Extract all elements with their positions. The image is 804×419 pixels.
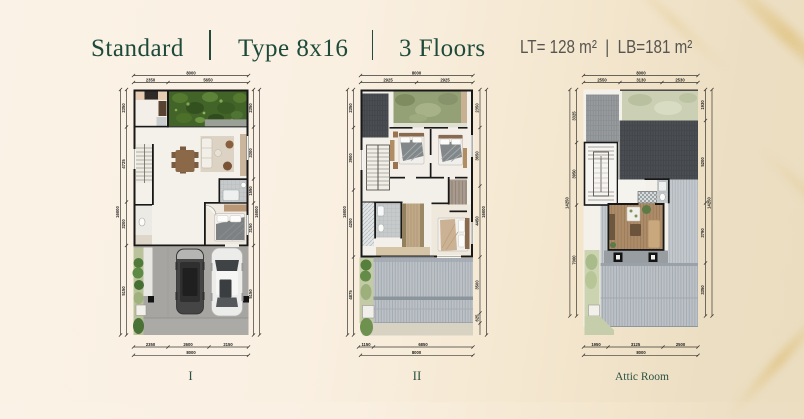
svg-text:3650: 3650 bbox=[475, 151, 480, 161]
svg-text:3500: 3500 bbox=[475, 280, 480, 290]
svg-text:1550: 1550 bbox=[248, 186, 253, 196]
svg-text:4450: 4450 bbox=[475, 216, 480, 226]
svg-text:5200: 5200 bbox=[700, 157, 705, 167]
svg-text:6850: 6850 bbox=[418, 342, 428, 347]
svg-text:3125: 3125 bbox=[631, 342, 641, 347]
svg-text:2350: 2350 bbox=[121, 103, 126, 113]
svg-text:2500: 2500 bbox=[676, 342, 686, 347]
svg-text:2350: 2350 bbox=[146, 342, 156, 347]
svg-text:5650: 5650 bbox=[203, 77, 213, 82]
svg-text:3325: 3325 bbox=[571, 111, 576, 121]
svg-text:5150: 5150 bbox=[248, 289, 253, 299]
svg-text:8000: 8000 bbox=[412, 350, 422, 355]
svg-text:Attic Room: Attic Room bbox=[615, 371, 669, 383]
svg-text:14250: 14250 bbox=[707, 197, 712, 209]
svg-text:3130: 3130 bbox=[636, 77, 646, 82]
svg-text:I: I bbox=[188, 368, 192, 383]
svg-text:16000: 16000 bbox=[342, 206, 347, 218]
svg-text:2350: 2350 bbox=[348, 103, 353, 113]
svg-text:8000: 8000 bbox=[186, 70, 196, 75]
svg-text:2550: 2550 bbox=[597, 77, 607, 82]
svg-text:1930: 1930 bbox=[700, 100, 705, 110]
svg-text:625: 625 bbox=[475, 314, 480, 322]
svg-text:2150: 2150 bbox=[223, 342, 233, 347]
svg-text:7000: 7000 bbox=[571, 255, 576, 265]
svg-text:4875: 4875 bbox=[348, 290, 353, 300]
svg-text:2530: 2530 bbox=[675, 77, 685, 82]
svg-text:8000: 8000 bbox=[636, 350, 646, 355]
svg-text:4200: 4200 bbox=[348, 218, 353, 228]
svg-text:8000: 8000 bbox=[412, 70, 422, 75]
svg-text:1150: 1150 bbox=[361, 342, 371, 347]
svg-text:3150: 3150 bbox=[248, 223, 253, 233]
svg-text:3200: 3200 bbox=[121, 219, 126, 229]
svg-text:3790: 3790 bbox=[700, 228, 705, 238]
svg-text:4725: 4725 bbox=[121, 159, 126, 169]
svg-text:8000: 8000 bbox=[186, 350, 196, 355]
svg-text:16000: 16000 bbox=[254, 206, 259, 218]
svg-text:3300: 3300 bbox=[248, 148, 253, 158]
svg-text:3350: 3350 bbox=[700, 285, 705, 295]
svg-text:2925: 2925 bbox=[440, 77, 450, 82]
svg-text:8000: 8000 bbox=[636, 70, 646, 75]
svg-text:3900: 3900 bbox=[348, 153, 353, 163]
svg-text:3950: 3950 bbox=[571, 169, 576, 179]
svg-text:2350: 2350 bbox=[475, 103, 480, 113]
svg-text:2925: 2925 bbox=[383, 77, 393, 82]
svg-text:2600: 2600 bbox=[183, 342, 193, 347]
svg-text:II: II bbox=[413, 368, 422, 383]
svg-text:2350: 2350 bbox=[248, 103, 253, 113]
svg-text:16000: 16000 bbox=[481, 206, 486, 218]
svg-text:5150: 5150 bbox=[121, 286, 126, 296]
svg-text:1950: 1950 bbox=[591, 342, 601, 347]
svg-text:16000: 16000 bbox=[115, 206, 120, 218]
svg-text:14250: 14250 bbox=[565, 197, 570, 209]
svg-text:2350: 2350 bbox=[146, 77, 156, 82]
